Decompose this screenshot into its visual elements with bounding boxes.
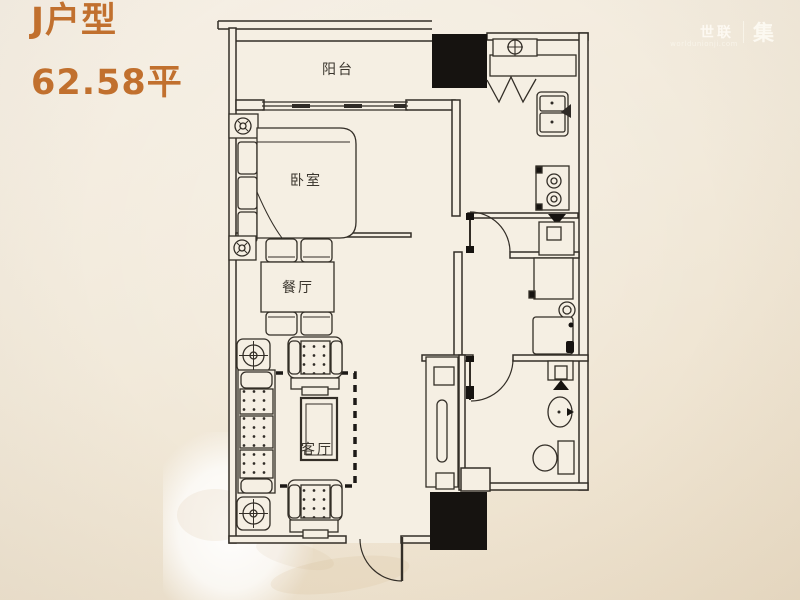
entry-jamb-wall bbox=[401, 536, 431, 543]
armchair-icon bbox=[288, 480, 342, 538]
storage-cabinet-icon bbox=[529, 258, 573, 299]
gas-meter-icon bbox=[493, 39, 537, 56]
dining-label: 餐厅 bbox=[282, 277, 314, 297]
corridor-wall-lower bbox=[454, 252, 462, 356]
brand-name: 世联 bbox=[700, 22, 734, 42]
title-block: J户型 62.58平 bbox=[31, 4, 183, 101]
column-marker-icon bbox=[229, 114, 258, 138]
ceiling-fixture-icon bbox=[237, 497, 270, 530]
column-shaft-bottom bbox=[430, 492, 487, 550]
column-marker-icon bbox=[229, 236, 256, 260]
bath-north-wall-right bbox=[513, 355, 588, 361]
unit-area: 62.58平 bbox=[31, 66, 183, 101]
duct-niche bbox=[461, 468, 490, 491]
unit-name: J户型 bbox=[31, 4, 183, 39]
refrigerator-icon bbox=[539, 222, 574, 255]
floorplan-page: 阳台 卧室 餐厅 客厅 J户型 62.58平 世联 集 worldunionji… bbox=[0, 0, 800, 600]
bath-south-wall bbox=[487, 483, 588, 490]
tv-cabinet-icon bbox=[426, 357, 458, 489]
bedroom-label: 卧室 bbox=[290, 170, 322, 190]
two-burner-stove-icon bbox=[536, 166, 569, 210]
brand-url: worldunionji.com bbox=[670, 40, 738, 48]
balcony-wall-left bbox=[236, 100, 264, 110]
balcony-wall-right bbox=[406, 100, 455, 110]
column-shaft-top bbox=[432, 34, 487, 88]
water-heater-icon bbox=[548, 361, 573, 380]
balcony-label: 阳台 bbox=[322, 59, 354, 79]
wardrobe-icon bbox=[238, 142, 257, 242]
armchair-icon bbox=[288, 337, 342, 395]
sofa-icon bbox=[238, 370, 275, 493]
ceiling-fixture-icon bbox=[237, 339, 270, 372]
corridor-wall-upper bbox=[452, 100, 460, 216]
brand-divider bbox=[743, 21, 744, 43]
left-wall bbox=[229, 28, 236, 543]
kitchen-sink-icon bbox=[537, 92, 571, 136]
living-label: 客厅 bbox=[301, 439, 333, 459]
kitchen-counter bbox=[490, 55, 576, 76]
brand-mark: 集 bbox=[753, 17, 774, 47]
right-wall bbox=[579, 33, 588, 490]
